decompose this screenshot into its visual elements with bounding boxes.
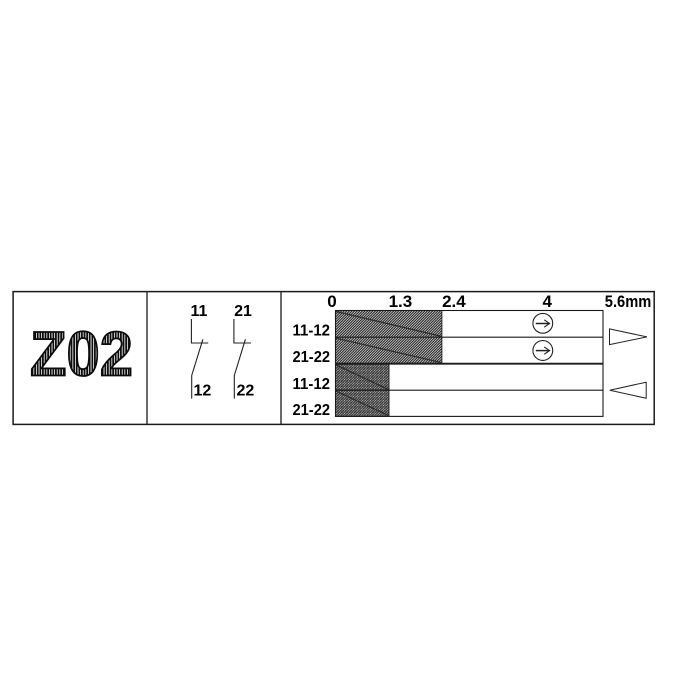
- svg-text:21: 21: [234, 303, 252, 320]
- svg-text:21-22: 21-22: [293, 349, 331, 366]
- svg-text:Z02: Z02: [30, 320, 133, 390]
- svg-text:21-22: 21-22: [293, 402, 331, 419]
- svg-text:22: 22: [237, 383, 255, 400]
- svg-text:5.6mm: 5.6mm: [605, 292, 652, 311]
- svg-text:2.4: 2.4: [442, 292, 466, 311]
- svg-text:0: 0: [327, 292, 336, 311]
- svg-text:11-12: 11-12: [293, 376, 331, 393]
- svg-text:12: 12: [194, 383, 212, 400]
- svg-text:4: 4: [542, 292, 552, 311]
- svg-text:11: 11: [191, 303, 208, 320]
- svg-text:1.3: 1.3: [389, 292, 413, 311]
- svg-text:11-12: 11-12: [293, 322, 331, 339]
